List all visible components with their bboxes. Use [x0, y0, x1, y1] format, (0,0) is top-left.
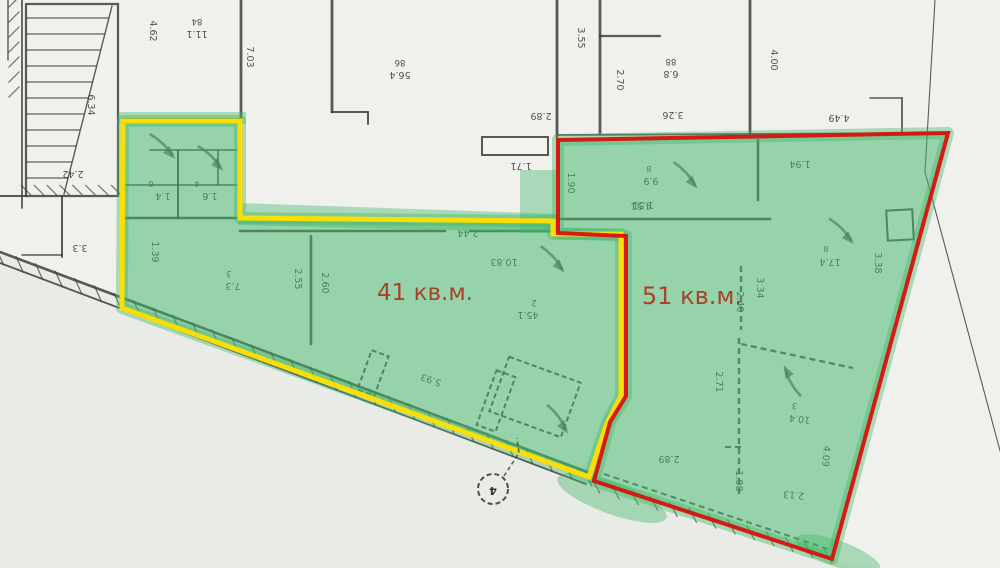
dimension-text: 2.89 [530, 110, 551, 121]
dimension-text: 3.55 [575, 27, 586, 48]
floor-plan-drawing: 6.344.628411.12.423.37.038656.42.891.713… [0, 0, 1000, 568]
dimension-text: 3.3 [72, 242, 87, 253]
dimension-text: 3.26 [662, 109, 683, 120]
dimension-text: 56.4 [389, 69, 410, 80]
dimension-text: 4.62 [147, 20, 158, 41]
unit-41-area-label: 41 кв.м. [377, 280, 473, 306]
dimension-text: 4.00 [768, 49, 779, 70]
dimension-text: 1.71 [510, 160, 531, 171]
dimension-text: 84 [192, 16, 203, 26]
dimension-text: 88 [666, 56, 677, 66]
dimension-text: 7.03 [244, 46, 255, 67]
marker-number: 4 [489, 484, 497, 497]
dimension-text: 86 [395, 57, 406, 67]
dimension-text: 6.8 [663, 68, 678, 79]
dimension-text: 4.49 [828, 112, 849, 123]
dimension-text: 2.70 [614, 69, 625, 90]
shaft-rect [482, 137, 548, 155]
unit-51-area-label: 51 кв.м. [642, 282, 742, 310]
dimension-text: 11.1 [186, 28, 207, 39]
dimension-text: 2.42 [62, 168, 83, 179]
floor-plan-canvas: floor plan with two highlighted retail u… [0, 0, 1000, 568]
dimension-text: 6.34 [85, 94, 96, 115]
